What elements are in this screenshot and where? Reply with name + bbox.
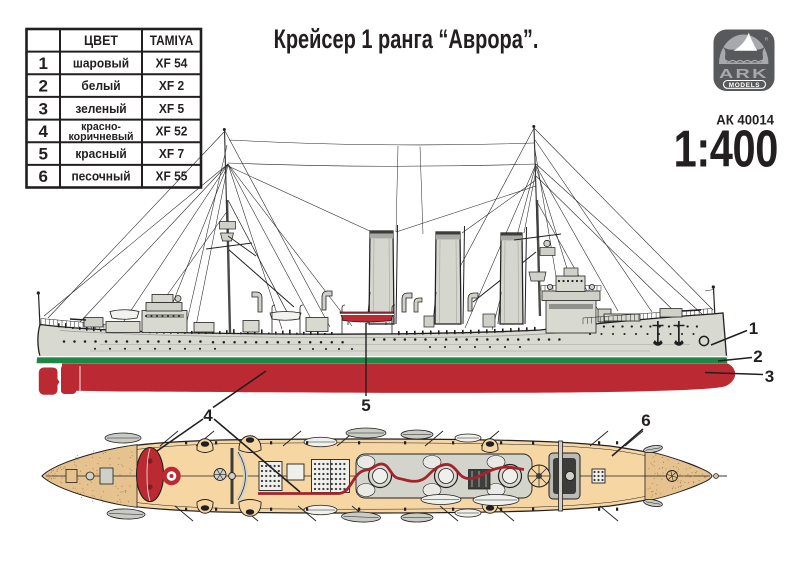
svg-text:3: 3 [39,99,48,118]
svg-text:MODELS: MODELS [729,82,761,89]
svg-text:TAMIYA: TAMIYA [150,32,194,48]
svg-text:1:400: 1:400 [674,119,778,178]
svg-text:2: 2 [39,77,48,96]
svg-text:6: 6 [641,411,650,430]
svg-text:белый: белый [81,79,120,94]
svg-text:XF 7: XF 7 [159,147,184,162]
svg-text:XF 52: XF 52 [156,124,188,139]
svg-text:песочный: песочный [71,169,130,184]
svg-text:5: 5 [39,145,48,164]
svg-text:коричневый: коричневый [69,131,134,143]
svg-text:XF 55: XF 55 [156,169,188,184]
svg-text:3: 3 [765,367,774,386]
svg-text:красный: красный [75,147,126,162]
svg-text:ARK: ARK [719,66,769,81]
svg-text:6: 6 [39,167,48,186]
svg-text:зеленый: зеленый [75,101,126,116]
svg-text:ЦВЕТ: ЦВЕТ [84,33,118,49]
svg-text:XF 5: XF 5 [159,101,184,116]
svg-text:Крейсер 1 ранга “Аврора”.: Крейсер 1 ранга “Аврора”. [274,24,539,55]
svg-text:4: 4 [203,406,213,425]
svg-text:1: 1 [749,319,758,338]
svg-text:шаровый: шаровый [73,56,129,71]
svg-text:5: 5 [361,396,370,415]
svg-text:XF 54: XF 54 [156,56,188,71]
svg-text:1: 1 [39,54,48,73]
svg-text:4: 4 [39,122,49,141]
svg-text:2: 2 [753,347,762,366]
svg-text:XF 2: XF 2 [159,79,184,94]
